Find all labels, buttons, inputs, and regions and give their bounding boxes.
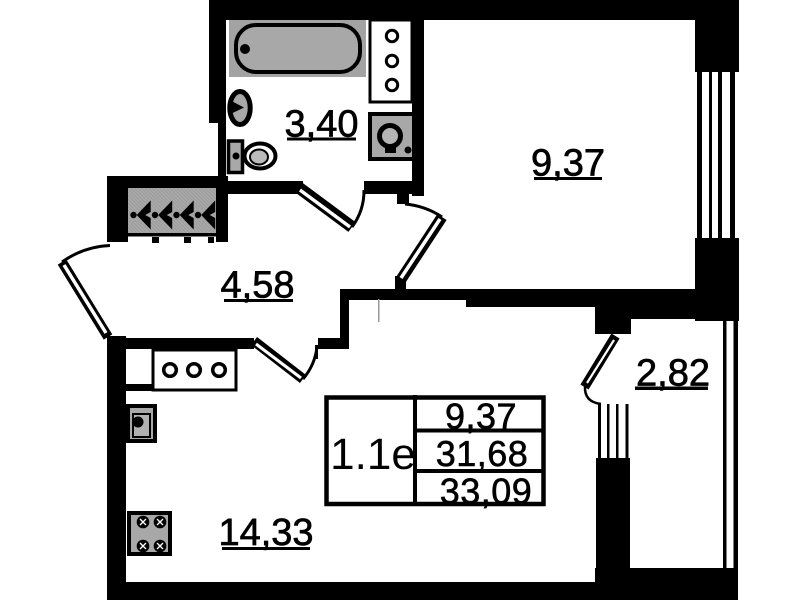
svg-text:9,37: 9,37 xyxy=(445,396,517,437)
svg-text:33,09: 33,09 xyxy=(440,471,533,512)
svg-text:1.1е: 1.1е xyxy=(330,430,416,479)
svg-text:31,68: 31,68 xyxy=(436,433,529,474)
